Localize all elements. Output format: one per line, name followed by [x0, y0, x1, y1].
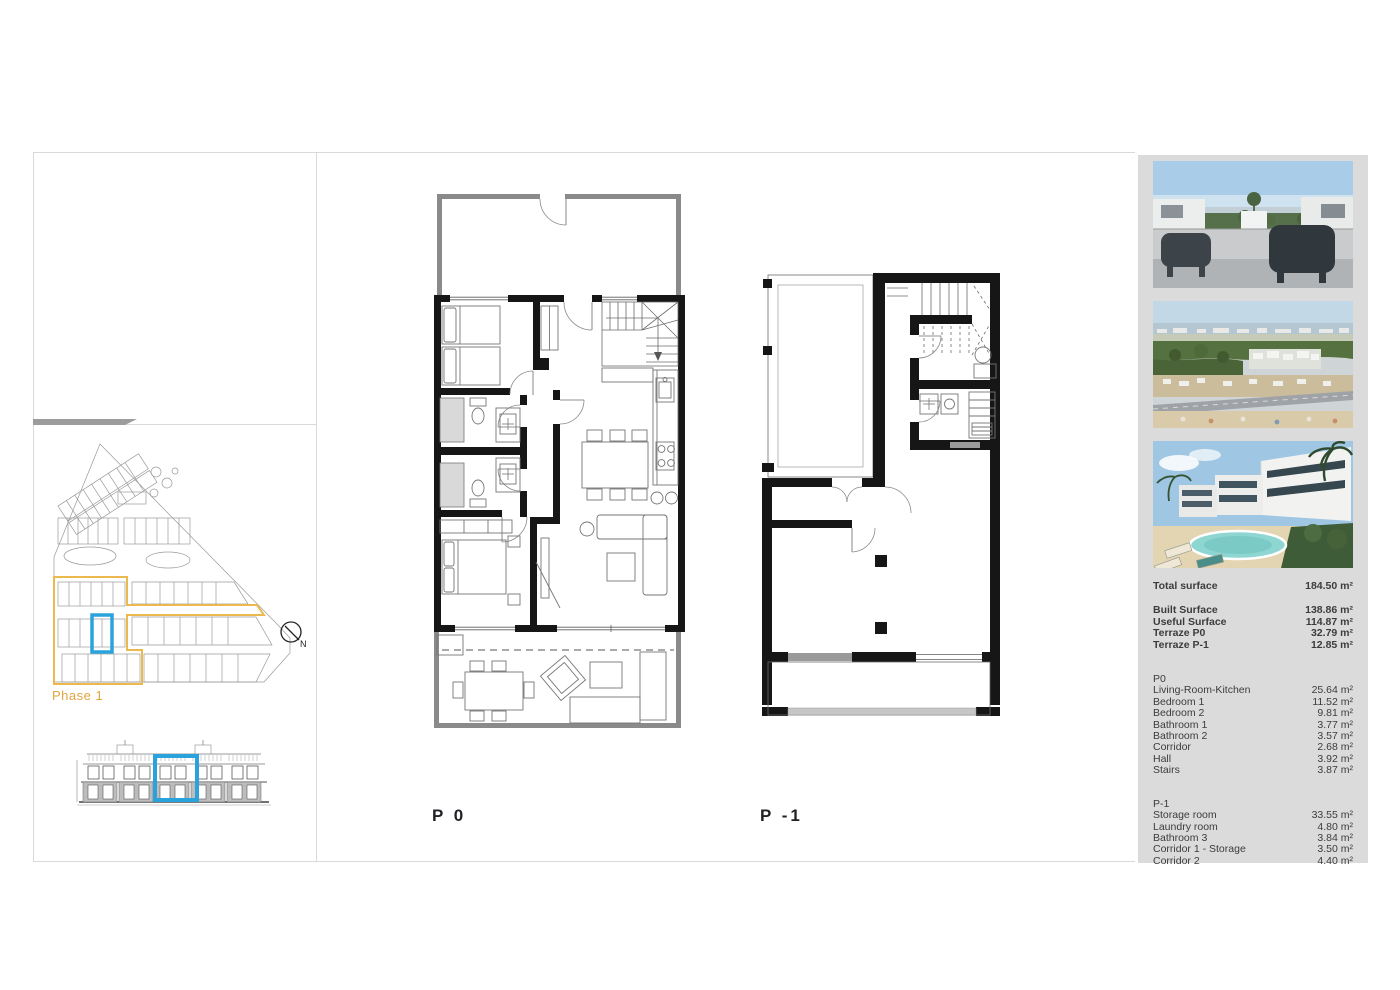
frame-bottom-rule	[33, 861, 1135, 862]
compass-north-label: N	[300, 639, 307, 649]
summary-rows: Built Surface 138.86 m² Useful Surface 1…	[1153, 605, 1353, 651]
room-surface-row: Stairs 3.87 m²	[1153, 765, 1353, 776]
elevation-upper-floor	[88, 766, 258, 779]
p1-laundry	[919, 392, 995, 438]
surface-summary-row: Terraze P-1 12.85 m²	[1153, 640, 1353, 651]
room-surface-row: Corridor 2 4.40 m²	[1153, 856, 1353, 867]
p0-stairs	[602, 302, 678, 366]
decorative-gray-bar	[33, 419, 137, 425]
total-surface-label: Total surface	[1153, 581, 1218, 592]
photo-residential-pool-render	[1153, 441, 1353, 568]
p0-plan-label: P 0	[432, 806, 466, 826]
p1-terrace	[768, 662, 990, 715]
p1-patio	[762, 275, 873, 477]
site-plan-drawing: N Phase 1	[38, 442, 318, 710]
p0-doors	[498, 302, 592, 542]
surface-table: Total surface 184.50 m² Built Surface 13…	[1153, 581, 1353, 867]
p-1-plan-label: P -1	[760, 806, 803, 826]
p0-floor-plan	[420, 180, 700, 755]
p1-walls	[762, 273, 1000, 716]
p0-bedroom2-furniture	[440, 520, 520, 605]
p0-terrace-furniture	[437, 635, 666, 723]
site-upper-rows	[58, 518, 190, 568]
p1-bathroom3	[919, 336, 996, 378]
elevation-drawing	[75, 740, 271, 810]
p0-dining-set	[582, 430, 678, 504]
phase1-outline	[54, 577, 264, 684]
total-surface-value: 184.50 m²	[1305, 581, 1353, 592]
frame-top-rule	[33, 152, 1135, 153]
compass-icon: N	[281, 622, 307, 649]
p0-walls	[434, 295, 685, 632]
p1-storage-window-gray	[788, 653, 852, 661]
p-1-floor-plan	[750, 260, 1020, 730]
p0-bathroom1	[440, 398, 520, 442]
p0-tv-unit	[536, 538, 560, 608]
p0-bathroom2	[440, 458, 520, 507]
frame-left-rule	[33, 152, 34, 862]
info-sidebar: Total surface 184.50 m² Built Surface 13…	[1138, 155, 1368, 863]
plan-sheet-page: N Phase 1	[0, 0, 1400, 990]
room-surface-row: Storage room 33.55 m²	[1153, 810, 1353, 821]
p0-kitchen	[602, 368, 678, 485]
room-surface-row: Bedroom 2 9.81 m²	[1153, 708, 1353, 719]
p1-hall-doors	[832, 487, 911, 552]
site-right-rows	[132, 582, 272, 682]
p-1-room-rows: Storage room 33.55 m² Laundry room 4.80 …	[1153, 810, 1353, 867]
p0-bedroom1-furniture	[442, 306, 500, 385]
p0-sofa-set	[580, 515, 667, 595]
p0-hall-closet	[541, 306, 558, 350]
phase1-label: Phase 1	[52, 688, 103, 703]
site-boundary	[54, 444, 290, 682]
p0-room-rows: Living-Room-Kitchen 25.64 m² Bedroom 1 1…	[1153, 685, 1353, 776]
p1-storage-window-glass	[916, 655, 982, 660]
p0-entry-terrace-walls	[437, 194, 681, 295]
photo-terrace-view	[1153, 161, 1353, 288]
photo-aerial-coast-view	[1153, 301, 1353, 428]
total-surface-row: Total surface 184.50 m²	[1153, 581, 1353, 592]
surface-summary-row: Terraze P0 32.79 m²	[1153, 628, 1353, 639]
room-surface-row: Corridor 1 - Storage 3.50 m²	[1153, 844, 1353, 855]
p0-terrace-walls	[434, 632, 681, 728]
p1-laundry-window	[950, 442, 980, 448]
